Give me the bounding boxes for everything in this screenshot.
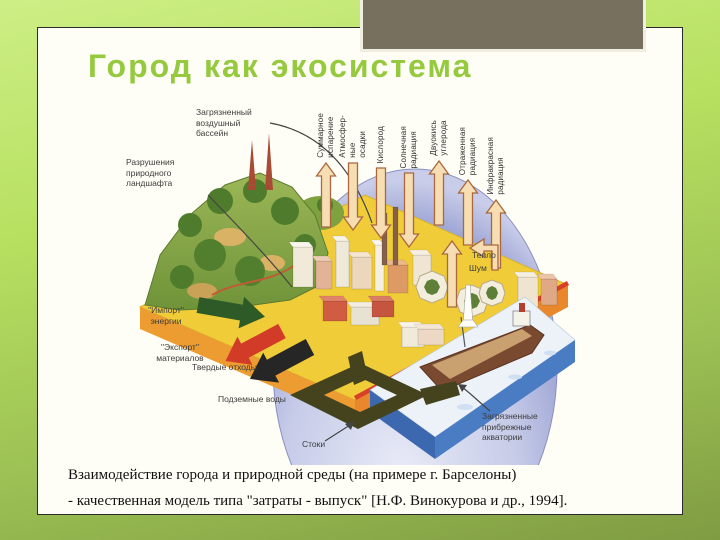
caption: Взаимодействие города и природной среды …	[68, 462, 668, 514]
oxygen-label: Кислород	[376, 126, 386, 163]
heat-label: Тепло	[472, 250, 496, 261]
building-roof	[348, 252, 372, 257]
building-roof	[514, 272, 538, 277]
slide-title: Город как экосистема	[88, 48, 472, 85]
building	[541, 279, 557, 305]
mountain	[145, 133, 344, 310]
building-roof	[319, 296, 347, 301]
solid-waste-label: Твердые отходы	[192, 362, 257, 373]
building-roof	[414, 324, 444, 329]
materials-export-label: "Экспорт" материалов	[134, 342, 226, 363]
building	[352, 257, 372, 289]
caption-line-1: Взаимодействие города и природной среды …	[68, 462, 668, 488]
polluted-air-basin-label: Загрязненный воздушный бассейн	[196, 107, 252, 139]
building-roof	[409, 250, 431, 255]
building	[372, 301, 394, 317]
ecosystem-diagram: Суммарное испарениеАтмосфер- ные осадкиК…	[120, 95, 660, 465]
building-roof	[289, 242, 313, 247]
building	[293, 247, 313, 287]
cathedral-spire-icon	[248, 140, 256, 190]
building	[336, 241, 349, 287]
ecosystem-illustration	[120, 95, 660, 465]
reflected-radiation-label: Отраженная радиация	[458, 127, 478, 175]
noise-label: Шум	[469, 263, 487, 274]
building	[393, 207, 398, 265]
atmospheric-precipitation-label: Атмосфер- ные осадки	[338, 115, 368, 158]
polluted-coastal-waters-label: Загрязненные прибрежные акватории	[482, 411, 538, 443]
solar-radiation-label: Солнечная радиация	[399, 126, 419, 169]
infrared-radiation-label: Инфракрасная радиация	[486, 137, 506, 195]
building	[316, 261, 332, 289]
building-roof	[368, 296, 394, 301]
building	[418, 329, 444, 345]
cathedral-spire-icon	[265, 133, 273, 190]
landscape-destruction-label: Разрушения природного ландшафта	[126, 157, 174, 189]
top-gray-panel	[360, 0, 646, 52]
energy-import-label: "Импорт" энергии	[130, 305, 202, 326]
groundwater-label: Подземные воды	[218, 394, 286, 405]
building	[323, 301, 347, 321]
total-evaporation-label: Суммарное испарение	[316, 113, 336, 158]
building	[388, 265, 408, 293]
runoff-label: Стоки	[302, 439, 325, 450]
caption-line-2: - качественная модель типа "затраты - вы…	[68, 488, 668, 514]
carbon-dioxide-label: Двуокись углерода	[429, 120, 449, 156]
